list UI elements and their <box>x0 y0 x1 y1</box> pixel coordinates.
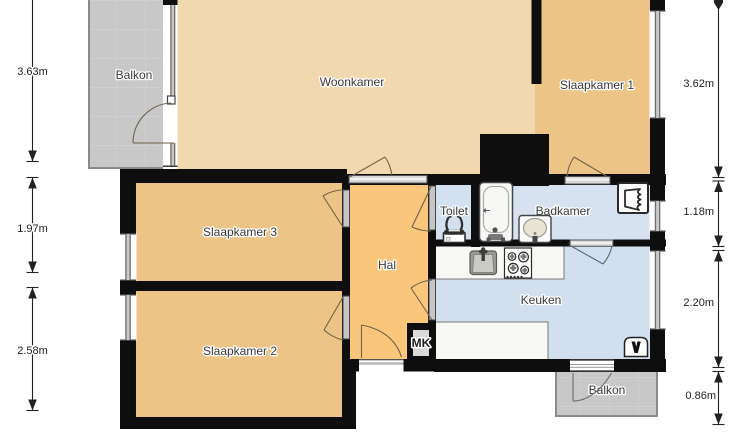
svg-text:Woonkamer: Woonkamer <box>320 75 384 89</box>
svg-text:Toilet: Toilet <box>440 204 469 218</box>
svg-text:Slaapkamer 2: Slaapkamer 2 <box>203 344 277 358</box>
svg-text:Balkon: Balkon <box>116 68 153 82</box>
svg-text:2.58m: 2.58m <box>17 345 48 357</box>
svg-text:0.86m: 0.86m <box>685 390 716 402</box>
svg-text:MK: MK <box>412 336 431 350</box>
svg-text:Balkon: Balkon <box>589 383 626 397</box>
svg-text:Slaapkamer 3: Slaapkamer 3 <box>203 225 277 239</box>
svg-text:Slaapkamer 1: Slaapkamer 1 <box>560 78 634 92</box>
svg-text:Keuken: Keuken <box>521 293 562 307</box>
svg-text:3.62m: 3.62m <box>683 78 714 90</box>
svg-text:2.20m: 2.20m <box>683 297 714 309</box>
svg-text:1.18m: 1.18m <box>683 206 714 218</box>
svg-text:Hal: Hal <box>378 258 396 272</box>
svg-text:1.97m: 1.97m <box>17 223 48 235</box>
svg-text:3.63m: 3.63m <box>17 66 48 78</box>
